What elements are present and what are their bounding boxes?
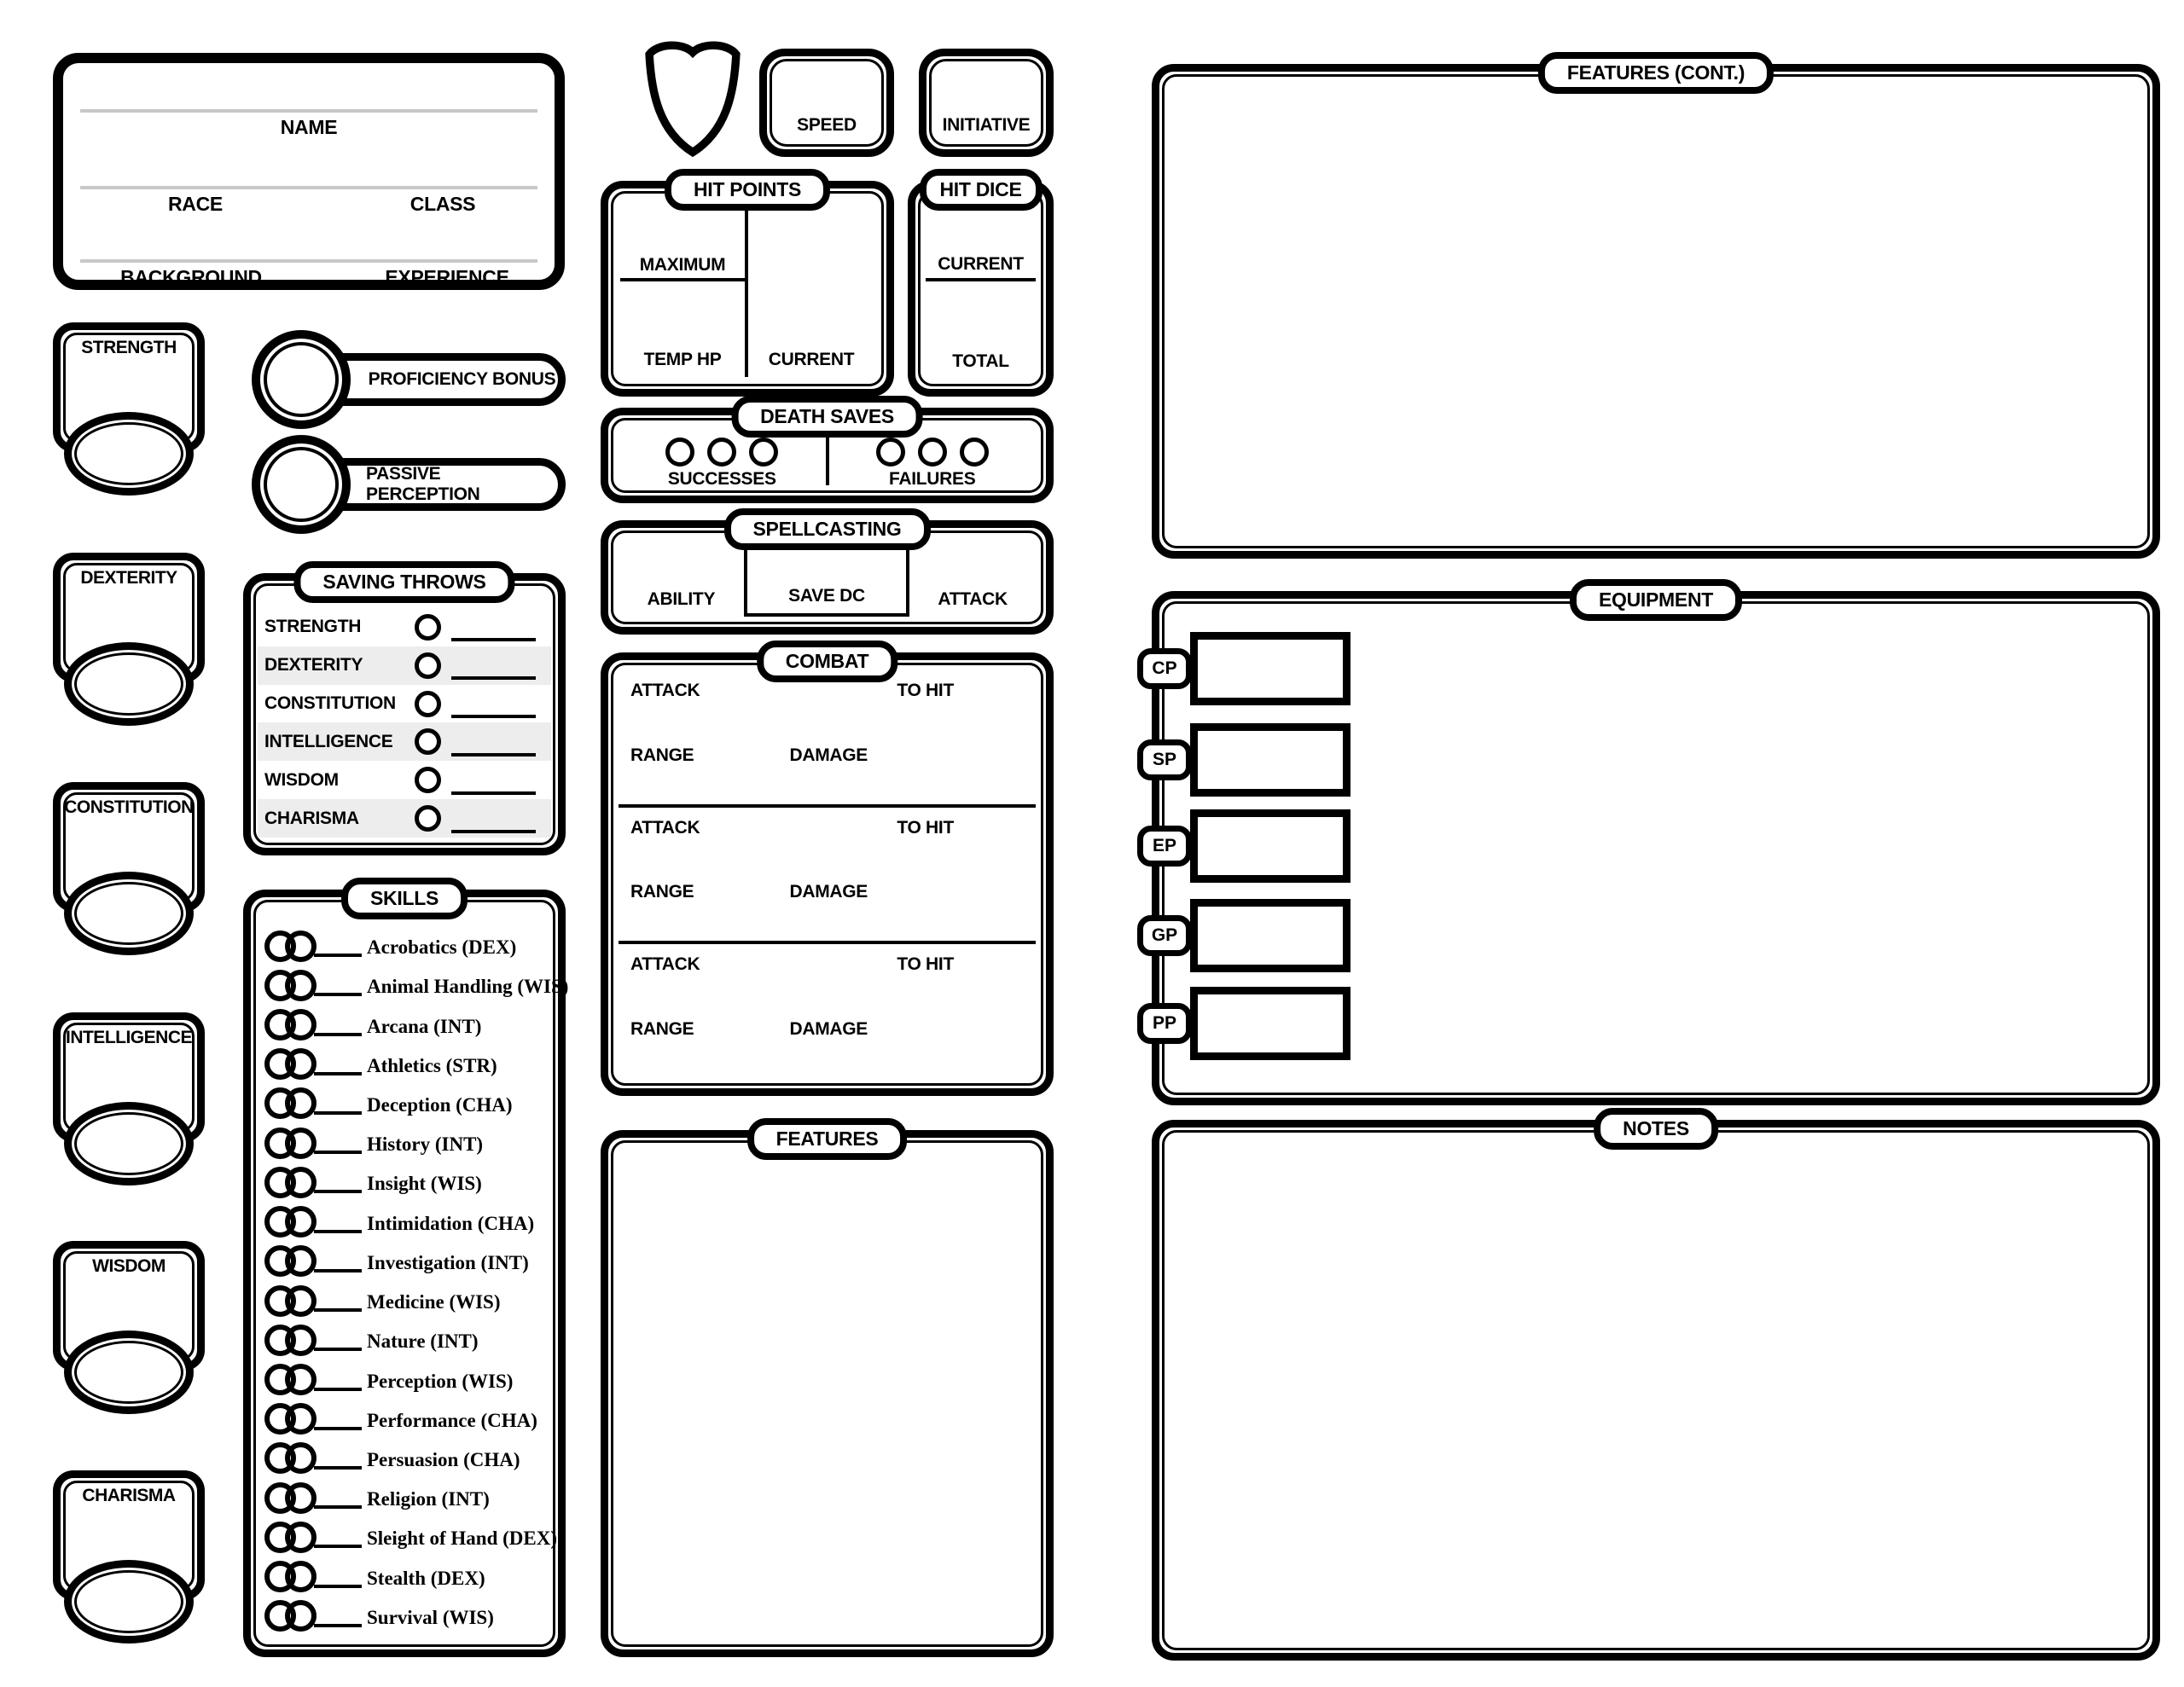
intelligence-modifier-oval[interactable] bbox=[64, 1102, 194, 1186]
spellcasting-ability-cell[interactable]: ABILITY bbox=[619, 538, 744, 617]
skill-proficiency-circles[interactable] bbox=[264, 970, 317, 1001]
combat-attack-entry[interactable]: ATTACK TO HIT RANGE DAMAGE bbox=[619, 804, 1036, 942]
inner-border bbox=[74, 882, 183, 945]
hit-points-box: HIT POINTS MAXIMUM TEMP HP CURRENT bbox=[601, 181, 894, 397]
saving-throw-proficiency-circle[interactable] bbox=[415, 805, 441, 832]
range-label: RANGE bbox=[630, 1019, 694, 1040]
features-cont-write-area[interactable] bbox=[1170, 82, 2142, 541]
background-experience-fields[interactable] bbox=[63, 188, 555, 261]
hit-dice-cell[interactable]: CURRENT TOTAL bbox=[926, 199, 1036, 379]
skill-label: Investigation (INT) bbox=[367, 1252, 529, 1274]
ability-box-intelligence: INTELLIGENCE bbox=[53, 1012, 205, 1142]
saving-throws-rows: STRENGTH DEXTERITY CONSTITUTION INTELLIG… bbox=[258, 608, 551, 838]
to-hit-label: TO HIT bbox=[897, 681, 954, 701]
saving-throw-row: INTELLIGENCE bbox=[258, 722, 551, 761]
coin-row-pp: PP bbox=[1137, 987, 1350, 1060]
skill-label: Nature (INT) bbox=[367, 1330, 479, 1353]
skill-row: Religion (INT) bbox=[264, 1478, 548, 1517]
skill-proficiency-circles[interactable] bbox=[264, 1522, 317, 1553]
passive-perception-pill: PASSIVE PERCEPTION bbox=[314, 458, 566, 511]
wisdom-modifier-oval[interactable] bbox=[64, 1330, 194, 1414]
gp-tag: GP bbox=[1137, 915, 1192, 956]
skill-proficiency-circles[interactable] bbox=[264, 1009, 317, 1041]
initiative-box[interactable]: INITIATIVE bbox=[919, 49, 1054, 157]
death-saves-box: DEATH SAVES SUCCESSES FAILURES bbox=[601, 408, 1054, 503]
equipment-title: EQUIPMENT bbox=[1570, 579, 1742, 621]
saving-throw-label: WISDOM bbox=[258, 770, 415, 791]
skill-row: Medicine (WIS) bbox=[264, 1281, 548, 1320]
constitution-modifier-oval[interactable] bbox=[64, 872, 194, 955]
skill-proficiency-circles[interactable] bbox=[264, 1482, 317, 1514]
inner-border bbox=[74, 1112, 183, 1175]
skill-value-line[interactable] bbox=[314, 1151, 362, 1154]
shield-icon[interactable] bbox=[642, 39, 744, 160]
hp-current-label: CURRENT bbox=[748, 350, 874, 370]
hp-temp-label: TEMP HP bbox=[620, 350, 745, 370]
background-experience-guide-line bbox=[80, 259, 537, 263]
name-field[interactable] bbox=[63, 63, 555, 114]
skill-label: Arcana (INT) bbox=[367, 1016, 481, 1038]
saving-throw-proficiency-circle[interactable] bbox=[415, 767, 441, 793]
success-checkbox[interactable] bbox=[707, 438, 736, 467]
saving-throw-row: CHARISMA bbox=[258, 799, 551, 838]
hp-maximum-label: MAXIMUM bbox=[620, 255, 745, 275]
skill-proficiency-circles[interactable] bbox=[264, 1325, 317, 1356]
saving-throw-value-line[interactable] bbox=[451, 791, 536, 795]
skill-value-line[interactable] bbox=[314, 1348, 362, 1351]
skill-value-line[interactable] bbox=[314, 1072, 362, 1075]
constitution-score-field[interactable] bbox=[61, 824, 197, 871]
ep-amount-box[interactable] bbox=[1190, 809, 1350, 883]
saving-throw-value-line[interactable] bbox=[451, 676, 536, 680]
skill-row: Survival (WIS) bbox=[264, 1597, 548, 1636]
skill-proficiency-circles[interactable] bbox=[264, 1048, 317, 1080]
combat-box: COMBAT ATTACK TO HIT RANGE DAMAGE ATTACK… bbox=[601, 652, 1054, 1096]
skill-label: Acrobatics (DEX) bbox=[367, 936, 516, 959]
hp-current-cell[interactable]: CURRENT bbox=[748, 200, 874, 377]
failure-checkbox[interactable] bbox=[876, 438, 905, 467]
intelligence-score-field[interactable] bbox=[61, 1054, 197, 1101]
saving-throw-proficiency-circle[interactable] bbox=[415, 652, 441, 679]
skill-proficiency-circles[interactable] bbox=[264, 1128, 317, 1159]
skill-proficiency-circles[interactable] bbox=[264, 1364, 317, 1395]
saving-throw-row: STRENGTH bbox=[258, 608, 551, 646]
skill-proficiency-circles[interactable] bbox=[264, 930, 317, 962]
combat-title: COMBAT bbox=[757, 641, 897, 682]
experience-label: EXPERIENCE bbox=[353, 266, 541, 288]
skill-label: Animal Handling (WIS) bbox=[367, 976, 568, 998]
skill-label: Performance (CHA) bbox=[367, 1410, 537, 1432]
features-cont-title: FEATURES (CONT.) bbox=[1538, 52, 1774, 94]
skill-proficiency-circles[interactable] bbox=[264, 1087, 317, 1119]
successes-label: SUCCESSES bbox=[668, 469, 776, 490]
notes-box: NOTES bbox=[1152, 1120, 2160, 1661]
skill-row: Athletics (STR) bbox=[264, 1045, 548, 1084]
notes-write-area[interactable] bbox=[1170, 1138, 2142, 1643]
hit-dice-title: HIT DICE bbox=[920, 169, 1043, 211]
inner-border bbox=[74, 1341, 183, 1404]
wisdom-score-field[interactable] bbox=[61, 1283, 197, 1330]
saving-throw-label: CHARISMA bbox=[258, 809, 415, 829]
spellcasting-box: SPELLCASTING ABILITY SAVE DC ATTACK bbox=[601, 520, 1054, 635]
pp-tag: PP bbox=[1137, 1003, 1192, 1044]
skill-row: Intimidation (CHA) bbox=[264, 1203, 548, 1242]
skill-label: Athletics (STR) bbox=[367, 1055, 497, 1077]
skill-value-line[interactable] bbox=[314, 1505, 362, 1509]
skills-title: SKILLS bbox=[341, 878, 468, 919]
skill-row: Stealth (DEX) bbox=[264, 1557, 548, 1597]
skill-row: Insight (WIS) bbox=[264, 1162, 548, 1202]
skill-label: Perception (WIS) bbox=[367, 1371, 513, 1393]
success-checkbox[interactable] bbox=[665, 438, 694, 467]
passive-perception-label: PASSIVE PERCEPTION bbox=[366, 464, 558, 505]
skill-row: Animal Handling (WIS) bbox=[264, 965, 548, 1005]
ability-box-dexterity: DEXTERITY bbox=[53, 553, 205, 682]
skill-row: Perception (WIS) bbox=[264, 1359, 548, 1399]
features-title: FEATURES bbox=[747, 1118, 908, 1160]
saving-throw-proficiency-circle[interactable] bbox=[415, 728, 441, 755]
range-label: RANGE bbox=[630, 882, 694, 902]
saving-throw-value-line[interactable] bbox=[451, 753, 536, 757]
proficiency-bonus-pill: PROFICIENCY BONUS bbox=[314, 353, 566, 406]
ability-label: CONSTITUTION bbox=[61, 797, 197, 818]
skill-row: Arcana (INT) bbox=[264, 1005, 548, 1044]
ability-label: INTELLIGENCE bbox=[61, 1028, 197, 1048]
coin-row-sp: SP bbox=[1137, 723, 1350, 797]
spellcasting-attack-label: ATTACK bbox=[909, 589, 1036, 610]
skill-row: Persuasion (CHA) bbox=[264, 1439, 548, 1478]
hp-divider-line bbox=[620, 278, 745, 281]
saving-throw-row: WISDOM bbox=[258, 761, 551, 799]
damage-label: DAMAGE bbox=[789, 1019, 868, 1040]
dexterity-modifier-oval[interactable] bbox=[64, 642, 194, 726]
charisma-score-field[interactable] bbox=[61, 1512, 197, 1559]
hit-dice-box: HIT DICE CURRENT TOTAL bbox=[908, 181, 1054, 397]
hit-dice-total-label: TOTAL bbox=[926, 351, 1036, 372]
saving-throws-title: SAVING THROWS bbox=[293, 561, 514, 603]
saving-throw-value-line[interactable] bbox=[451, 638, 536, 641]
skills-box: SKILLS Acrobatics (DEX) Animal Handling … bbox=[243, 890, 566, 1657]
character-info-box: NAME RACE CLASS BACKGROUND EXPERIENCE bbox=[53, 53, 565, 290]
ability-box-strength: STRENGTH bbox=[53, 322, 205, 452]
saving-throw-label: STRENGTH bbox=[258, 617, 415, 637]
spellcasting-ability-label: ABILITY bbox=[619, 589, 744, 610]
attack-label: ATTACK bbox=[630, 954, 700, 975]
saving-throw-label: INTELLIGENCE bbox=[258, 732, 415, 752]
spellcasting-attack-cell[interactable]: ATTACK bbox=[909, 538, 1036, 617]
coin-row-gp: GP bbox=[1137, 899, 1350, 972]
skill-proficiency-circles[interactable] bbox=[264, 1167, 317, 1198]
speed-box[interactable]: SPEED bbox=[759, 49, 894, 157]
ability-box-wisdom: WISDOM bbox=[53, 1241, 205, 1371]
skill-value-line[interactable] bbox=[314, 1033, 362, 1036]
skill-label: Stealth (DEX) bbox=[367, 1568, 485, 1590]
failures-label: FAILURES bbox=[889, 469, 975, 490]
name-guide-line bbox=[80, 109, 537, 113]
ability-label: STRENGTH bbox=[61, 338, 197, 358]
dexterity-score-field[interactable] bbox=[61, 594, 197, 641]
ability-label: WISDOM bbox=[61, 1256, 197, 1277]
pp-amount-box[interactable] bbox=[1190, 987, 1350, 1060]
saving-throw-row: DEXTERITY bbox=[258, 646, 551, 685]
saving-throw-value-line[interactable] bbox=[451, 830, 536, 833]
failure-checkbox[interactable] bbox=[918, 438, 947, 467]
skill-row: Investigation (INT) bbox=[264, 1242, 548, 1281]
skill-label: Deception (CHA) bbox=[367, 1094, 513, 1116]
race-class-fields[interactable] bbox=[63, 114, 555, 188]
skill-value-line[interactable] bbox=[314, 1308, 362, 1312]
skill-label: Insight (WIS) bbox=[367, 1173, 482, 1195]
skill-proficiency-circles[interactable] bbox=[264, 1403, 317, 1435]
range-label: RANGE bbox=[630, 745, 694, 766]
skill-row: Acrobatics (DEX) bbox=[264, 926, 548, 965]
speed-label: SPEED bbox=[767, 115, 886, 136]
features-write-area[interactable] bbox=[619, 1148, 1036, 1639]
ability-box-constitution: CONSTITUTION bbox=[53, 782, 205, 912]
saving-throw-proficiency-circle[interactable] bbox=[415, 614, 441, 641]
skill-proficiency-circles[interactable] bbox=[264, 1285, 317, 1317]
skill-label: Persuasion (CHA) bbox=[367, 1449, 520, 1471]
strength-score-field[interactable] bbox=[61, 364, 197, 411]
skill-value-line[interactable] bbox=[314, 1269, 362, 1272]
saving-throw-label: CONSTITUTION bbox=[258, 693, 415, 714]
coin-row-cp: CP bbox=[1137, 632, 1350, 705]
ability-label: DEXTERITY bbox=[61, 568, 197, 588]
features-cont-box: FEATURES (CONT.) bbox=[1152, 64, 2160, 559]
saving-throw-row: CONSTITUTION bbox=[258, 685, 551, 723]
damage-label: DAMAGE bbox=[789, 882, 868, 902]
proficiency-bonus-label: PROFICIENCY BONUS bbox=[369, 369, 556, 390]
skill-proficiency-circles[interactable] bbox=[264, 1206, 317, 1238]
skill-value-line[interactable] bbox=[314, 954, 362, 957]
initiative-label: INITIATIVE bbox=[926, 115, 1046, 136]
skills-rows: Acrobatics (DEX) Animal Handling (WIS) A… bbox=[264, 926, 548, 1636]
spellcasting-save-dc-label: SAVE DC bbox=[747, 586, 906, 606]
death-saves-title: DEATH SAVES bbox=[731, 396, 923, 438]
combat-attack-entry[interactable]: ATTACK TO HIT RANGE DAMAGE bbox=[619, 941, 1036, 1078]
skill-row: Deception (CHA) bbox=[264, 1084, 548, 1123]
cp-tag: CP bbox=[1137, 648, 1192, 689]
skill-label: Sleight of Hand (DEX) bbox=[367, 1528, 557, 1550]
inner-border bbox=[74, 422, 183, 485]
saving-throws-box: SAVING THROWS STRENGTH DEXTERITY CONSTIT… bbox=[243, 573, 566, 855]
skill-proficiency-circles[interactable] bbox=[264, 1561, 317, 1592]
skill-row: Performance (CHA) bbox=[264, 1400, 548, 1439]
character-sheet-page: NAME RACE CLASS BACKGROUND EXPERIENCE ST… bbox=[0, 0, 2184, 1687]
skill-label: Intimidation (CHA) bbox=[367, 1213, 534, 1235]
damage-label: DAMAGE bbox=[789, 745, 868, 766]
inner-border bbox=[264, 447, 339, 522]
features-box: FEATURES bbox=[601, 1130, 1054, 1657]
skill-value-line[interactable] bbox=[314, 1111, 362, 1115]
ep-tag: EP bbox=[1137, 826, 1192, 867]
hit-dice-divider-line bbox=[926, 278, 1036, 281]
skill-value-line[interactable] bbox=[314, 1427, 362, 1430]
gp-amount-box[interactable] bbox=[1190, 899, 1350, 972]
coin-row-ep: EP bbox=[1137, 809, 1350, 883]
sp-tag: SP bbox=[1137, 739, 1192, 780]
proficiency-bonus-circle[interactable] bbox=[252, 330, 351, 429]
passive-perception-circle[interactable] bbox=[252, 435, 351, 534]
attack-label: ATTACK bbox=[630, 818, 700, 838]
inner-border bbox=[264, 342, 339, 417]
skill-value-line[interactable] bbox=[314, 1545, 362, 1548]
saving-throw-value-line[interactable] bbox=[451, 715, 536, 718]
saving-throw-proficiency-circle[interactable] bbox=[415, 691, 441, 717]
ability-label: CHARISMA bbox=[61, 1486, 197, 1506]
attack-label: ATTACK bbox=[630, 681, 700, 701]
inner-border bbox=[74, 652, 183, 716]
success-checkbox[interactable] bbox=[749, 438, 778, 467]
inner-border bbox=[74, 1570, 183, 1633]
skill-row: Nature (INT) bbox=[264, 1320, 548, 1359]
skill-proficiency-circles[interactable] bbox=[264, 1600, 317, 1632]
skill-label: History (INT) bbox=[367, 1133, 483, 1156]
spellcasting-title: SPELLCASTING bbox=[723, 508, 930, 550]
background-label: BACKGROUND bbox=[93, 266, 289, 288]
skill-label: Survival (WIS) bbox=[367, 1607, 494, 1629]
cp-amount-box[interactable] bbox=[1190, 632, 1350, 705]
failure-checkbox[interactable] bbox=[960, 438, 989, 467]
skill-value-line[interactable] bbox=[314, 1585, 362, 1588]
skill-value-line[interactable] bbox=[314, 1388, 362, 1391]
hit-dice-current-label: CURRENT bbox=[926, 254, 1036, 275]
skill-value-line[interactable] bbox=[314, 993, 362, 996]
combat-attack-entry[interactable]: ATTACK TO HIT RANGE DAMAGE bbox=[619, 670, 1036, 804]
hp-maximum-cell[interactable]: MAXIMUM TEMP HP bbox=[620, 200, 748, 377]
skill-row: History (INT) bbox=[264, 1123, 548, 1162]
skill-proficiency-circles[interactable] bbox=[264, 1245, 317, 1277]
skill-label: Medicine (WIS) bbox=[367, 1291, 501, 1313]
skill-value-line[interactable] bbox=[314, 1230, 362, 1233]
sp-amount-box[interactable] bbox=[1190, 723, 1350, 797]
skill-row: Sleight of Hand (DEX) bbox=[264, 1517, 548, 1557]
skill-label: Religion (INT) bbox=[367, 1488, 490, 1510]
skill-proficiency-circles[interactable] bbox=[264, 1442, 317, 1474]
skill-value-line[interactable] bbox=[314, 1466, 362, 1470]
notes-title: NOTES bbox=[1594, 1108, 1718, 1150]
hit-points-title: HIT POINTS bbox=[665, 169, 830, 211]
skill-value-line[interactable] bbox=[314, 1624, 362, 1627]
skill-value-line[interactable] bbox=[314, 1190, 362, 1193]
to-hit-label: TO HIT bbox=[897, 954, 954, 975]
equipment-write-area[interactable] bbox=[1364, 609, 2142, 1087]
ability-box-charisma: CHARISMA bbox=[53, 1470, 205, 1600]
saving-throw-label: DEXTERITY bbox=[258, 655, 415, 675]
to-hit-label: TO HIT bbox=[897, 818, 954, 838]
charisma-modifier-oval[interactable] bbox=[64, 1560, 194, 1644]
equipment-box: EQUIPMENT CP SP EP GP PP bbox=[1152, 591, 2160, 1105]
strength-modifier-oval[interactable] bbox=[64, 412, 194, 496]
